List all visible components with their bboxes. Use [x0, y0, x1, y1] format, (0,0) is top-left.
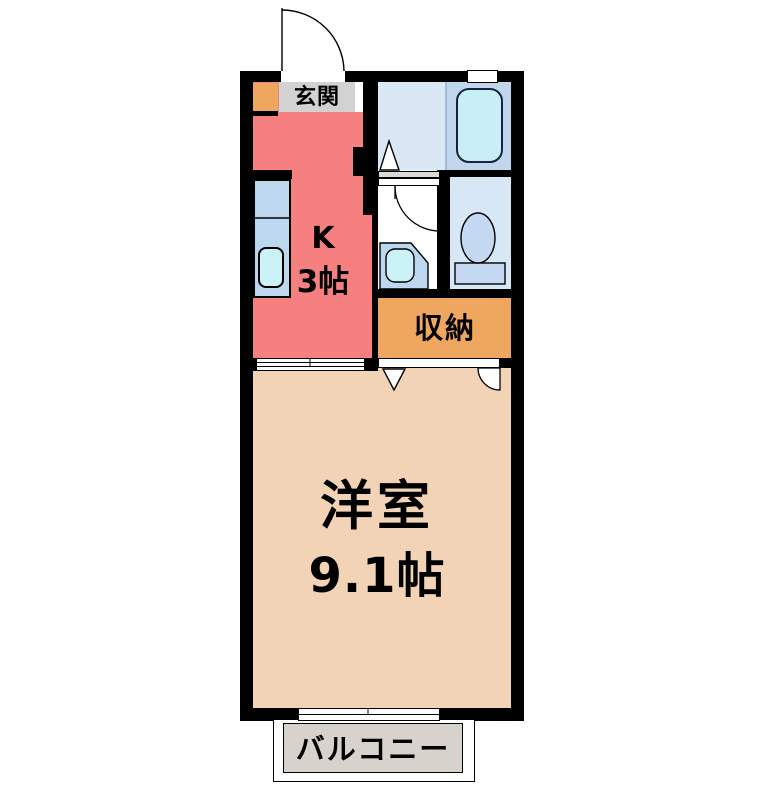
shoe-cabinet — [253, 83, 278, 111]
balcony-window — [298, 708, 440, 721]
kitchen-size-label: 3帖 — [287, 267, 359, 298]
entrance-door-swing-arc — [282, 10, 344, 71]
bathtub — [456, 88, 503, 163]
entrance-door — [282, 8, 344, 71]
bathroom-threshold-upper — [378, 171, 440, 178]
room-toilet — [450, 177, 512, 289]
wall-kitchen-washroom-a — [363, 82, 378, 147]
wall-washroom-toilet — [437, 170, 450, 289]
wall-counter-stub — [253, 170, 292, 179]
entrance-opening — [281, 71, 345, 82]
bathroom-window — [467, 70, 498, 83]
genkan-label: 玄関 — [279, 87, 355, 109]
room-bathroom-entry — [378, 82, 446, 170]
wall-kitchen-washroom-b — [363, 176, 378, 215]
main-room-type-label: 洋室 — [292, 480, 462, 533]
wall-under-shoe-cabinet — [252, 111, 278, 116]
wall-pier-mid — [365, 358, 378, 371]
kitchen-sliding-door — [256, 358, 365, 371]
wall-right — [511, 71, 524, 721]
floor-plan: 玄関 K 3帖 収納 洋室 9.1帖 バルコニー — [0, 0, 757, 800]
wall-above-storage — [378, 289, 512, 298]
genkan-side-gap — [355, 82, 363, 112]
storage-label: 収納 — [400, 314, 490, 343]
balcony-label: バルコニー — [283, 735, 463, 764]
main-room-size-label: 9.1帖 — [289, 552, 465, 600]
kitchen-sink — [258, 247, 284, 288]
bathroom-threshold-lower — [378, 178, 440, 186]
wall-storage-stub — [500, 358, 512, 368]
kitchen-type-label: K — [294, 224, 352, 254]
wall-left — [240, 71, 253, 721]
room-washroom — [378, 186, 437, 289]
wall-kitchen-washroom-notch — [353, 147, 378, 176]
closet-doors — [378, 358, 500, 368]
wall-kitchen-washroom-c — [372, 215, 378, 358]
